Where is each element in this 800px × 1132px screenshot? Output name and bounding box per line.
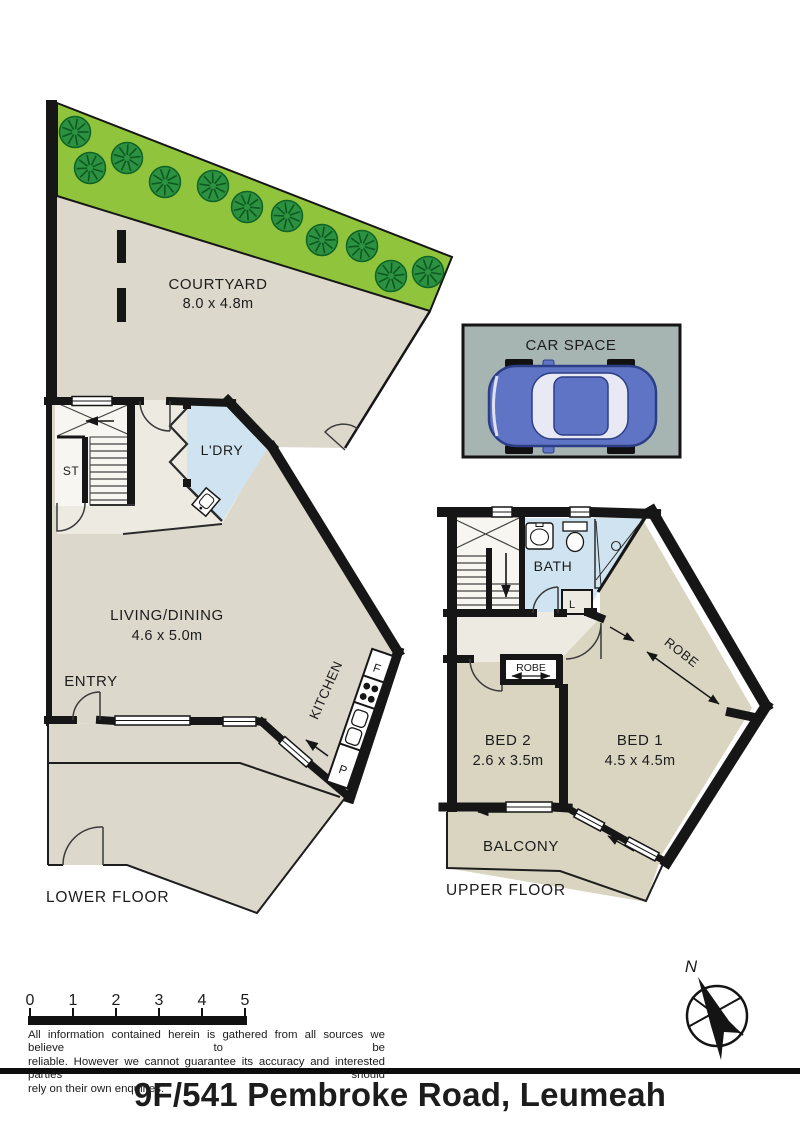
car-icon [489, 359, 656, 454]
floorplan-page: COURTYARD 8.0 x 4.8m CAR SPACE [0, 0, 800, 1132]
floorplan-drawing: COURTYARD 8.0 x 4.8m CAR SPACE [0, 0, 800, 1132]
tree-icon [60, 117, 91, 148]
scale-tick-1: 1 [69, 992, 78, 1009]
upper-floor-label: UPPER FLOOR [446, 882, 566, 899]
robe-bed2-label: ROBE [516, 662, 546, 674]
bed2-robe: ROBE [503, 657, 559, 682]
courtyard-dims: 8.0 x 4.8m [183, 296, 254, 312]
courtyard-post [117, 288, 126, 322]
scale-tick-2: 2 [112, 992, 121, 1009]
tree-icon [150, 167, 181, 198]
compass-icon: N [685, 957, 747, 1060]
tree-icon [347, 231, 378, 262]
scale-bar: 0 1 2 3 4 5 [26, 992, 250, 1025]
disclaimer: All information contained herein is gath… [28, 1029, 385, 1096]
disclaimer-line: All information contained herein is gath… [28, 1029, 385, 1056]
tree-icon [198, 171, 229, 202]
linen-label: L [569, 599, 575, 611]
tap-icon [536, 523, 543, 527]
lower-floor-plan: F P KITCHEN ST L'DRY LIVING/DINING 4.6 x… [46, 397, 398, 914]
balcony-label: BALCONY [483, 838, 559, 855]
tree-icon [376, 261, 407, 292]
scale-tick-5: 5 [241, 992, 250, 1009]
tree-icon [307, 225, 338, 256]
bed2-dims: 2.6 x 3.5m [473, 753, 544, 769]
lower-floor-label: LOWER FLOOR [46, 889, 169, 906]
disclaimer-line: reliable. However we cannot guarantee it… [28, 1056, 385, 1083]
scale-tick-3: 3 [155, 992, 164, 1009]
living-label: LIVING/DINING [110, 607, 224, 624]
laundry-label: L'DRY [201, 442, 244, 458]
tree-icon [75, 153, 106, 184]
tree-icon [112, 143, 143, 174]
living-dims: 4.6 x 5.0m [132, 628, 203, 644]
bath-label: BATH [534, 558, 573, 574]
courtyard-post [117, 230, 126, 263]
scale-tick-0: 0 [26, 992, 35, 1009]
stairs-lower [55, 398, 135, 506]
scale-bar-rule [28, 1016, 247, 1025]
bed2-label: BED 2 [485, 732, 531, 749]
upper-floor-plan: ROBE ROBE BATH L BED 2 2.6 x 3.5m BED 1 … [442, 507, 766, 902]
tree-icon [232, 192, 263, 223]
tree-icon [272, 201, 303, 232]
bed1-label: BED 1 [617, 732, 663, 749]
store-label: ST [63, 464, 79, 478]
bed1-dims: 4.5 x 4.5m [605, 753, 676, 769]
disclaimer-line: rely on their own enquiries. [28, 1083, 385, 1096]
north-label: N [685, 957, 698, 976]
entry-label: ENTRY [64, 673, 118, 690]
courtyard-label: COURTYARD [168, 276, 267, 293]
stairs-upper [452, 515, 522, 612]
toilet-icon [563, 522, 587, 531]
tree-icon [413, 257, 444, 288]
scale-tick-4: 4 [198, 992, 207, 1009]
car-space: CAR SPACE [463, 325, 680, 457]
car-space-label: CAR SPACE [526, 337, 617, 354]
